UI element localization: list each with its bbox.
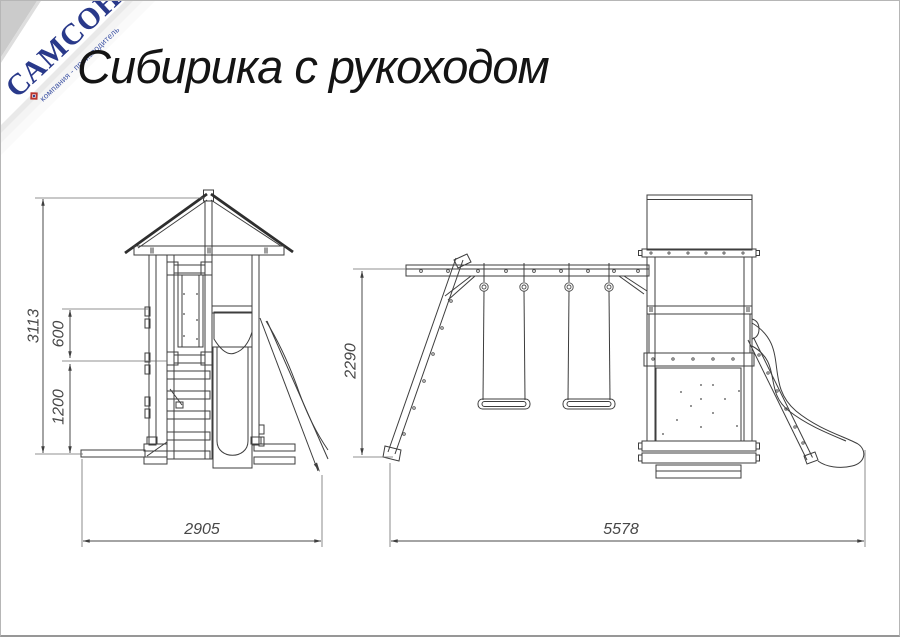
swing-1 bbox=[478, 263, 530, 409]
technical-drawing: 3113 600 1200 2905 bbox=[1, 1, 900, 637]
a-frame-foot bbox=[383, 446, 401, 461]
side-tower-railing bbox=[649, 314, 750, 353]
front-view-drawing: 3113 600 1200 2905 bbox=[26, 190, 329, 547]
a-frame-leg bbox=[383, 254, 475, 461]
dimension-label-total-height: 3113 bbox=[26, 309, 43, 344]
slide-end-arrow bbox=[314, 463, 320, 473]
side-view-drawing: 2290 5578 bbox=[343, 195, 866, 547]
front-slide-rails bbox=[260, 318, 328, 472]
side-tower-roof bbox=[647, 195, 752, 250]
swing-seat bbox=[478, 399, 530, 409]
front-ladder bbox=[167, 371, 210, 459]
dimension-label-length: 5578 bbox=[603, 521, 639, 538]
front-slide-hood bbox=[212, 306, 252, 356]
side-tower-handle bbox=[752, 319, 759, 339]
side-tower-climb-panel bbox=[656, 368, 741, 441]
dimension-label-beam-height: 2290 bbox=[343, 343, 360, 380]
front-roof bbox=[125, 190, 293, 255]
front-slide-tube bbox=[213, 347, 252, 468]
front-tower-posts bbox=[149, 201, 259, 459]
swing-2 bbox=[563, 263, 615, 409]
side-tower bbox=[639, 195, 760, 478]
page: САМСОН компания - производитель Сибирика… bbox=[0, 0, 900, 637]
dimension-label-deck-height: 1200 bbox=[51, 389, 68, 425]
dimension-label-rail-height: 600 bbox=[51, 321, 68, 348]
side-slide bbox=[748, 323, 864, 467]
swing-seat bbox=[563, 399, 615, 409]
dimension-label-width: 2905 bbox=[183, 521, 220, 538]
